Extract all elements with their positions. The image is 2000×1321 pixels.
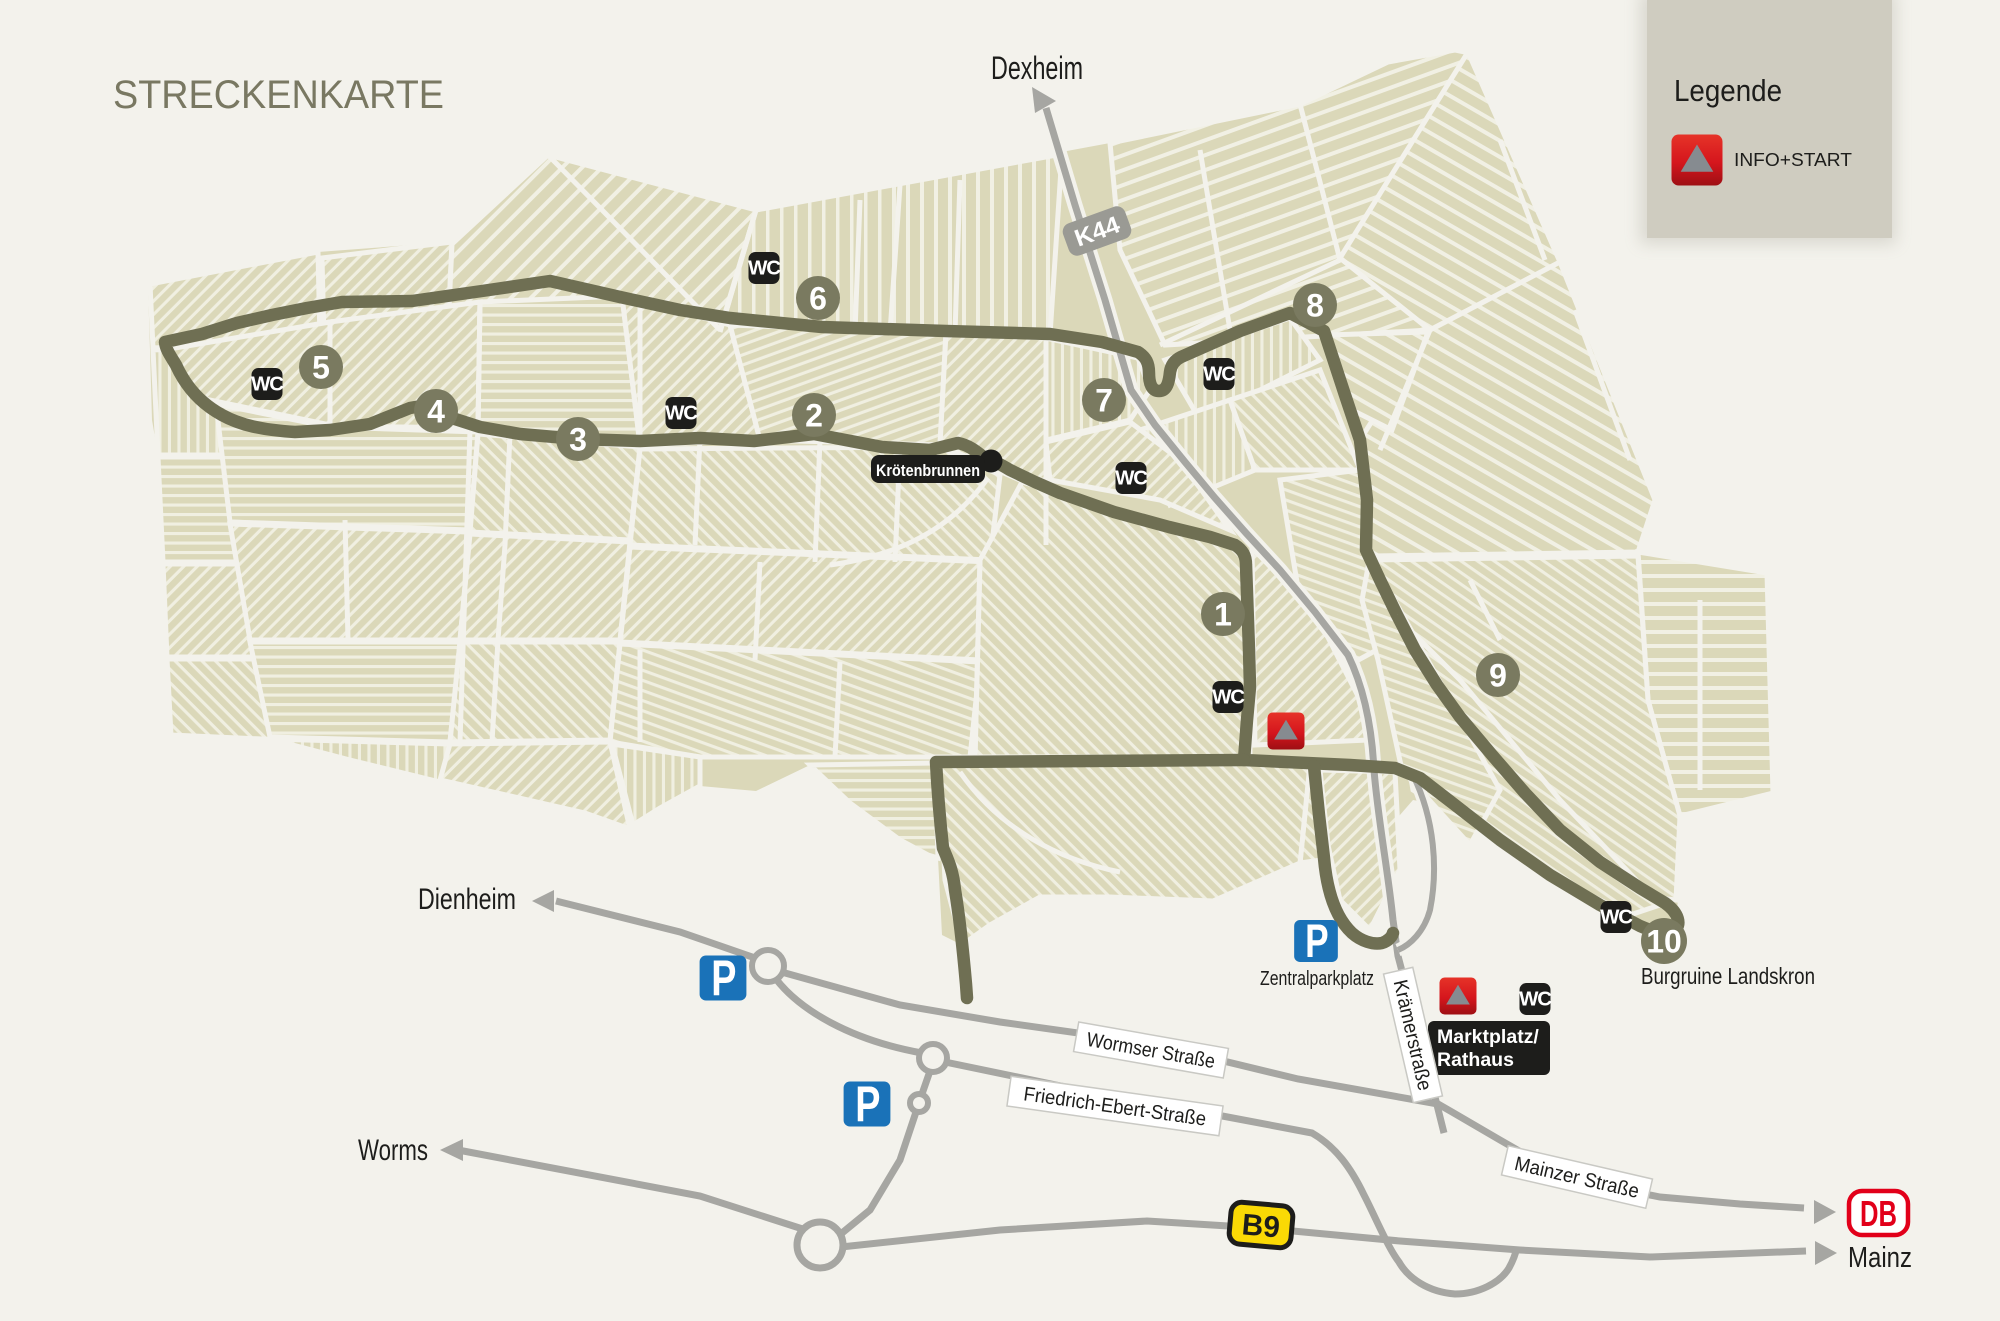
svg-text:WC: WC <box>1519 988 1552 1011</box>
svg-text:Mainzer Straße: Mainzer Straße <box>1512 1153 1641 1203</box>
svg-text:STRECKENKARTE: STRECKENKARTE <box>113 73 444 117</box>
svg-text:B9: B9 <box>1241 1208 1282 1244</box>
svg-text:6: 6 <box>809 281 827 317</box>
svg-text:5: 5 <box>312 350 330 386</box>
svg-text:WC: WC <box>1203 363 1236 386</box>
svg-text:WC: WC <box>1212 686 1245 709</box>
svg-text:WC: WC <box>251 373 284 396</box>
svg-text:2: 2 <box>805 398 823 434</box>
svg-text:9: 9 <box>1489 658 1507 694</box>
svg-text:Legende: Legende <box>1674 73 1782 108</box>
svg-text:WC: WC <box>748 257 781 280</box>
svg-text:P: P <box>855 1075 880 1132</box>
svg-text:WC: WC <box>1115 467 1148 490</box>
svg-text:Worms: Worms <box>358 1134 428 1167</box>
svg-text:Burgruine Landskron: Burgruine Landskron <box>1641 963 1815 989</box>
svg-text:Mainz: Mainz <box>1848 1242 1912 1274</box>
svg-text:8: 8 <box>1306 288 1324 324</box>
svg-text:DB: DB <box>1860 1193 1897 1234</box>
svg-text:P: P <box>1305 914 1329 967</box>
svg-text:P: P <box>711 949 736 1006</box>
svg-text:Dexheim: Dexheim <box>991 50 1083 86</box>
svg-text:4: 4 <box>427 394 445 430</box>
svg-text:10: 10 <box>1646 924 1682 960</box>
svg-text:Marktplatz/: Marktplatz/ <box>1437 1026 1539 1048</box>
svg-text:INFO+START: INFO+START <box>1734 150 1852 170</box>
svg-text:7: 7 <box>1095 383 1113 419</box>
svg-text:Zentralparkplatz: Zentralparkplatz <box>1260 968 1374 990</box>
svg-text:Rathaus: Rathaus <box>1437 1049 1514 1071</box>
svg-text:1: 1 <box>1214 597 1232 633</box>
svg-text:WC: WC <box>1600 906 1633 929</box>
svg-text:Krötenbrunnen: Krötenbrunnen <box>876 461 980 480</box>
svg-text:Dienheim: Dienheim <box>418 883 516 916</box>
svg-text:3: 3 <box>569 422 587 458</box>
svg-text:WC: WC <box>665 402 698 425</box>
